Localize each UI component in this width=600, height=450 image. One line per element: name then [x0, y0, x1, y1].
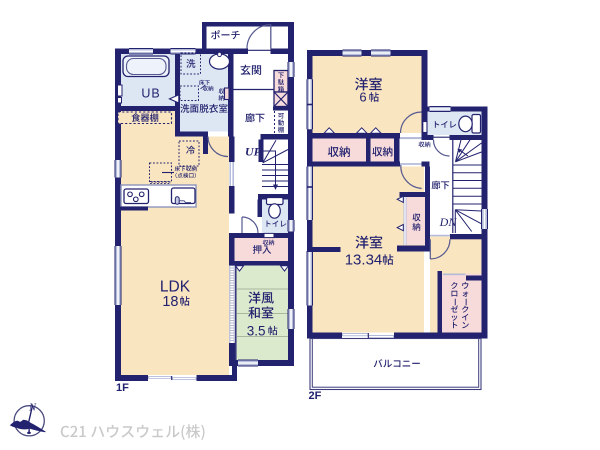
svg-text:LDK: LDK	[160, 279, 191, 296]
svg-text:13.34: 13.34	[345, 251, 383, 268]
svg-text:6: 6	[359, 90, 366, 105]
svg-text:UB: UB	[141, 87, 160, 101]
svg-text:2F: 2F	[309, 390, 322, 402]
svg-text:N: N	[28, 403, 37, 414]
svg-text:18: 18	[162, 294, 178, 310]
svg-text:UP: UP	[245, 145, 262, 159]
svg-text:3.5: 3.5	[247, 324, 266, 339]
svg-text:1F: 1F	[116, 382, 129, 394]
svg-text:DN: DN	[439, 215, 458, 229]
